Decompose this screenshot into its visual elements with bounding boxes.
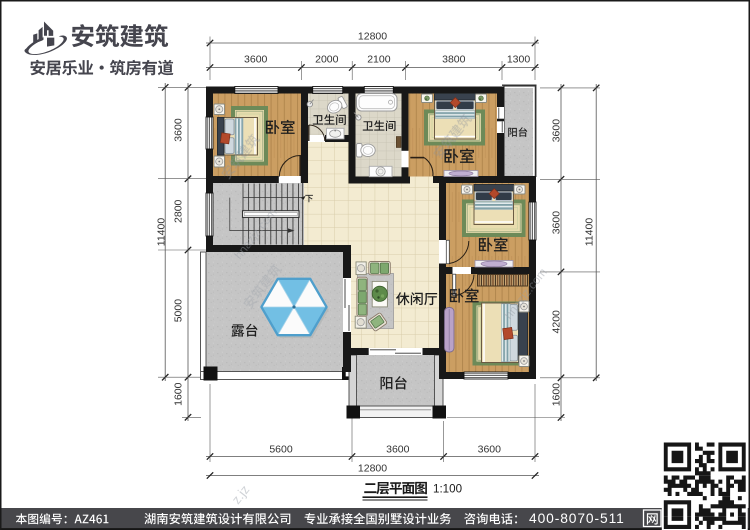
- svg-text:3600: 3600: [244, 54, 268, 66]
- svg-text:12800: 12800: [358, 463, 387, 475]
- svg-text:2800: 2800: [173, 199, 185, 223]
- svg-text:3600: 3600: [551, 119, 563, 143]
- svg-text:1300: 1300: [507, 54, 531, 66]
- svg-text:11400: 11400: [156, 218, 168, 247]
- svg-text:3600: 3600: [551, 211, 563, 235]
- svg-text:3800: 3800: [442, 54, 466, 66]
- svg-text:1:100: 1:100: [433, 483, 462, 496]
- svg-text:2000: 2000: [315, 54, 339, 66]
- svg-text:3600: 3600: [386, 444, 410, 456]
- svg-text:2100: 2100: [367, 54, 391, 66]
- svg-text:4200: 4200: [551, 310, 563, 334]
- svg-text:3600: 3600: [173, 118, 185, 142]
- svg-text:3600: 3600: [478, 444, 502, 456]
- svg-text:11400: 11400: [584, 218, 596, 247]
- svg-text:12800: 12800: [358, 31, 387, 43]
- svg-text:5600: 5600: [269, 444, 293, 456]
- svg-text:1600: 1600: [173, 382, 185, 406]
- svg-text:400-8070-511: 400-8070-511: [529, 511, 625, 526]
- svg-text:1600: 1600: [551, 383, 563, 407]
- svg-text:5000: 5000: [173, 299, 185, 323]
